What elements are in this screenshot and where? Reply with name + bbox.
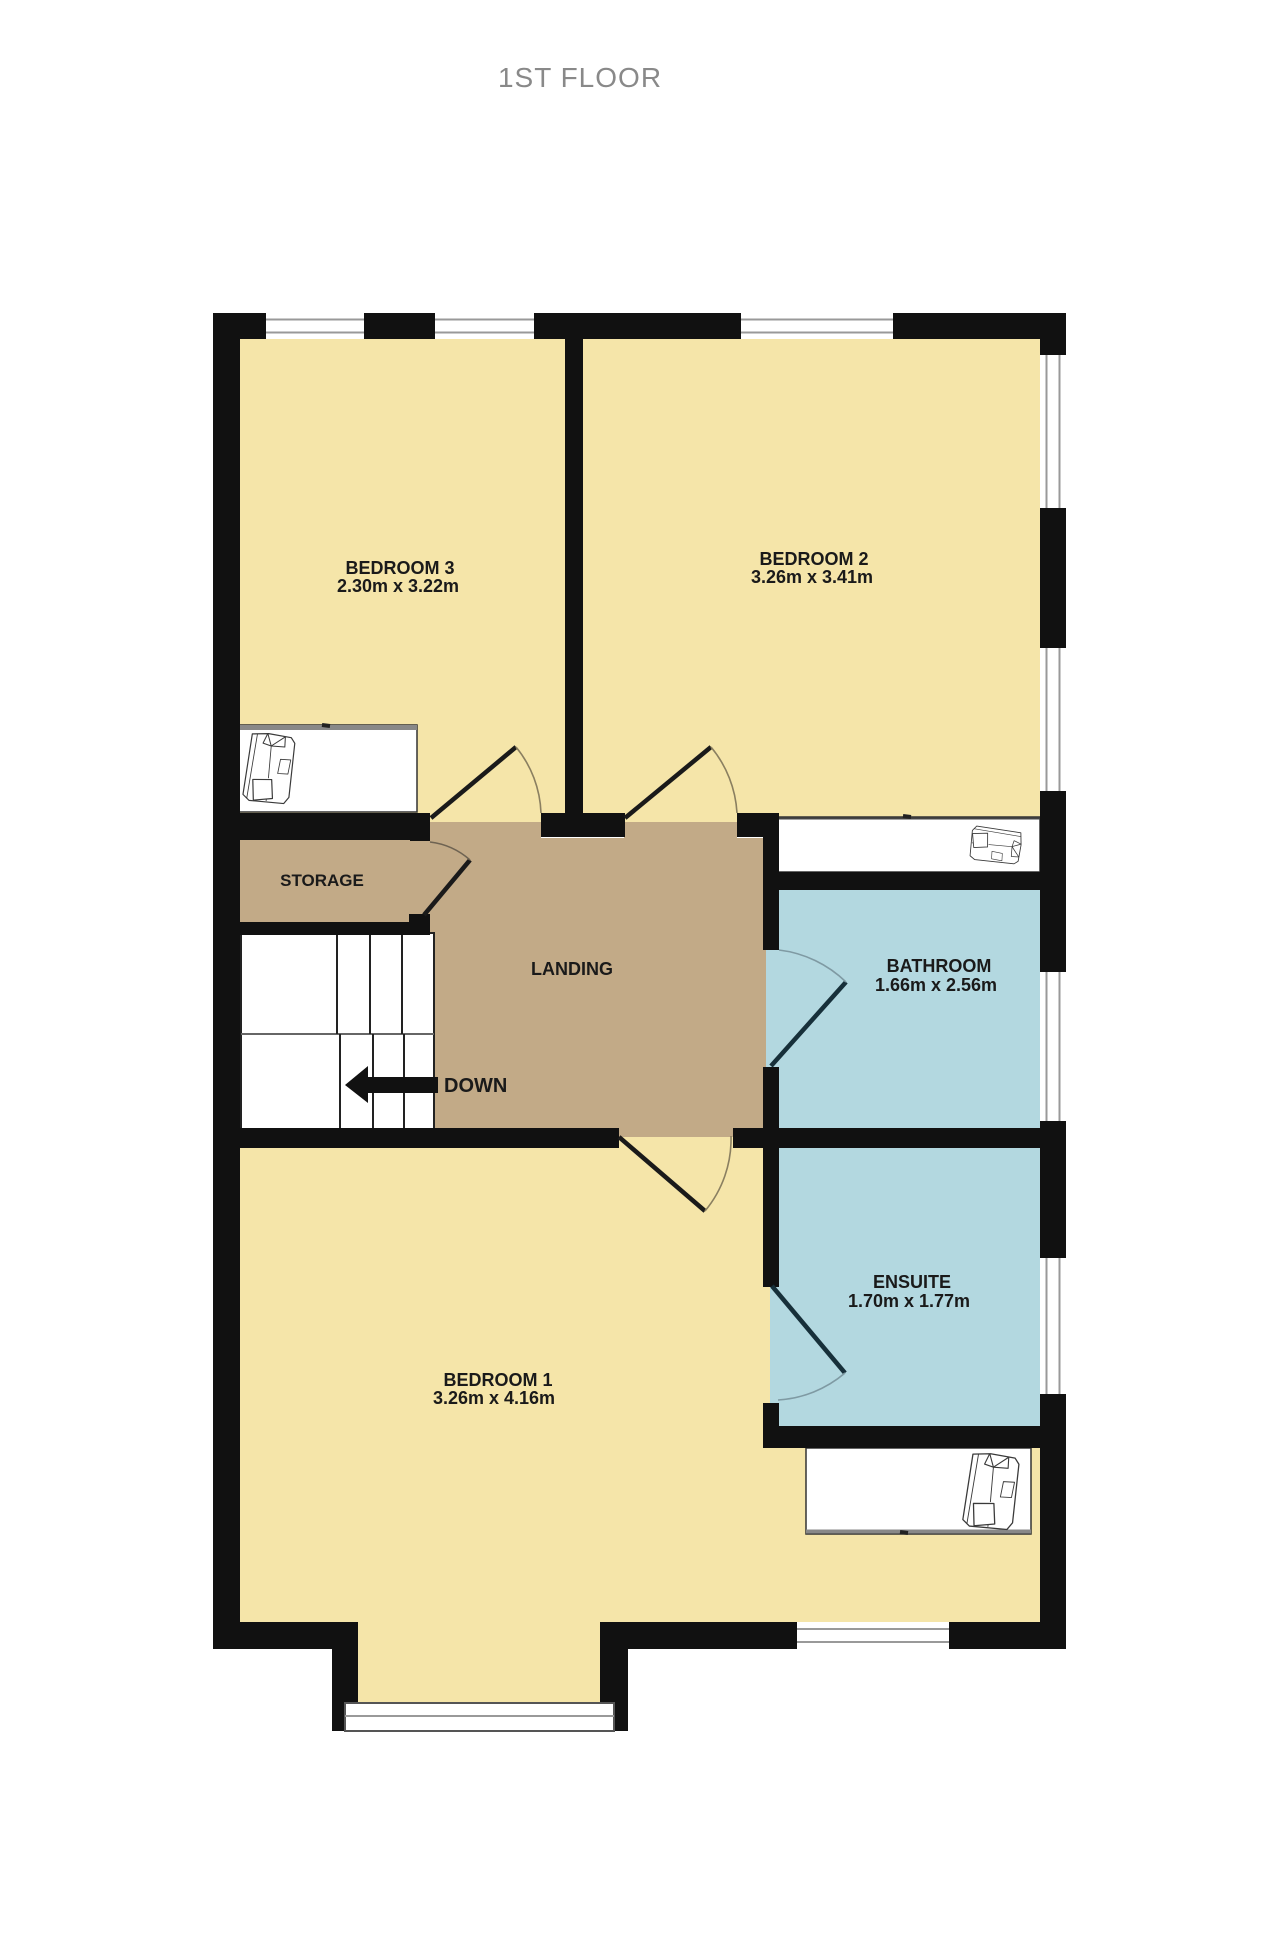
svg-text:3.26m x 3.41m: 3.26m x 3.41m	[751, 567, 873, 587]
svg-text:ENSUITE: ENSUITE	[873, 1272, 951, 1292]
svg-text:LANDING: LANDING	[531, 959, 613, 979]
svg-text:DOWN: DOWN	[444, 1075, 507, 1097]
svg-text:2.30m x 3.22m: 2.30m x 3.22m	[337, 576, 459, 596]
svg-text:1.66m x 2.56m: 1.66m x 2.56m	[875, 975, 997, 995]
svg-text:BEDROOM 3: BEDROOM 3	[345, 558, 454, 578]
svg-text:BATHROOM: BATHROOM	[887, 956, 992, 976]
svg-text:BEDROOM 2: BEDROOM 2	[759, 549, 868, 569]
svg-text:3.26m x 4.16m: 3.26m x 4.16m	[433, 1388, 555, 1408]
svg-text:BEDROOM 1: BEDROOM 1	[443, 1370, 552, 1390]
svg-text:STORAGE: STORAGE	[280, 871, 364, 890]
svg-text:1.70m x 1.77m: 1.70m x 1.77m	[848, 1291, 970, 1311]
svg-text:1ST FLOOR: 1ST FLOOR	[498, 62, 662, 93]
